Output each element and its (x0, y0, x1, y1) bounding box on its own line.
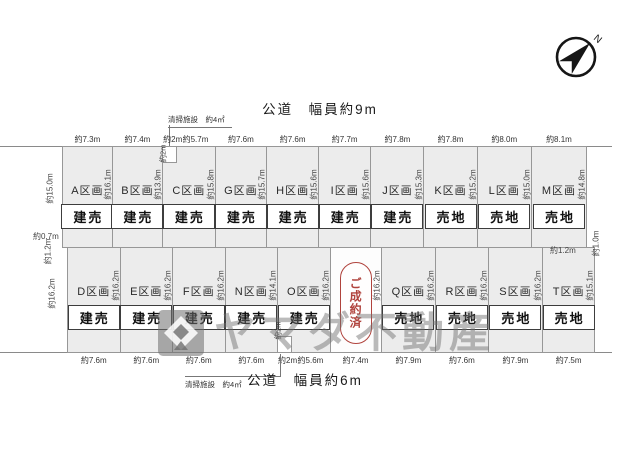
notch-depth-label: 約2m (158, 141, 169, 167)
side-measurement: 約14.1m (268, 261, 279, 311)
lot-f: 約7.6mF区画建売約16.2m (173, 247, 226, 353)
edge-measurement-left-step-v: 約1.2m (43, 232, 54, 272)
side-measurement: 約15.7m (257, 160, 268, 210)
frontage-measurement: 約7.7m (319, 134, 370, 145)
frontage-segment: 約5.6m (291, 355, 329, 366)
frontage-measurement: 約2m約5.6m (278, 355, 330, 366)
lot-i: 約7.7mI区画建売約15.6m (319, 146, 371, 248)
frontage-measurement: 約7.6m (226, 355, 278, 366)
frontage-measurement: 約7.6m (436, 355, 488, 366)
lot-b: 約7.4mB区画建売約13.9m (113, 146, 163, 248)
frontage-measurement: 約8.0m (478, 134, 531, 145)
frontage-segment: 約7.3m (63, 134, 112, 145)
frontage-segment: 約8.1m (532, 134, 586, 145)
side-measurement: 約16.2m (110, 261, 121, 311)
site-plan: N 公道 幅員約9m 清掃施設 約4㎡ 約7.3mA区画建売約16.1m約7.4… (0, 0, 640, 453)
frontage-measurement: 約2m約5.7m (163, 134, 214, 145)
lot-t: 約7.5mT区画売地約15.1m (543, 247, 595, 353)
frontage-measurement: 約7.6m (216, 134, 267, 145)
lot-r: 約7.6mR区画売地約16.2m (436, 247, 489, 353)
frontage-measurement: 約7.8m (371, 134, 423, 145)
side-measurement: 約16.2m (163, 261, 174, 311)
side-measurement: 約13.9m (153, 160, 164, 210)
sold-badge: ご成約済 (340, 262, 372, 344)
lot-m: 約8.1mM区画売地約14.8m (532, 146, 587, 248)
frontage-measurement: 約7.6m (121, 355, 173, 366)
lot-s: 約7.9mS区画売地約16.2m (489, 247, 544, 353)
north-compass-icon: N (549, 26, 605, 82)
frontage-segment: 約7.6m (121, 355, 173, 366)
frontage-measurement: 約7.6m (68, 355, 120, 366)
edge-measurement-left-north: 約15.0m (45, 167, 56, 211)
lot-c: 約2m約5.7mC区画建売約15.8m約2m (163, 146, 215, 248)
lot-e: 約7.6mE区画建売約16.2m (121, 247, 174, 353)
frontage-measurement: 約7.5m (543, 355, 594, 366)
frontage-measurement: 約7.4m (113, 134, 162, 145)
road-label-north: 公道 幅員約9m (0, 98, 640, 118)
frontage-segment: 約7.6m (436, 355, 488, 366)
frontage-measurement: 約7.6m (267, 134, 318, 145)
side-measurement: 約14.8m (577, 160, 588, 210)
frontage-measurement: 約7.3m (63, 134, 112, 145)
facility-note-north: 清掃施設 約4㎡ (168, 114, 232, 128)
side-measurement: 約16.2m (533, 261, 544, 311)
side-measurement: 約15.6m (361, 160, 372, 210)
side-measurement: 約15.1m (585, 261, 596, 311)
notch-depth-label: 約2m (273, 318, 284, 344)
side-measurement: 約16.2m (215, 261, 226, 311)
compass-n-label: N (591, 33, 604, 46)
side-measurement: 約15.8m (205, 160, 216, 210)
lot-o: 約2m約5.6mO区画建売約16.2m約2m (278, 247, 331, 353)
frontage-segment: 約7.6m (216, 134, 267, 145)
frontage-measurement: 約7.8m (424, 134, 476, 145)
lot-k: 約7.8mK区画売地約15.2m (424, 146, 477, 248)
lot-j: 約7.8mJ区画建売約15.3m (371, 146, 424, 248)
frontage-measurement: 約7.4m (331, 355, 381, 366)
lot-n: 約7.6mN区画建売約14.1m (226, 247, 279, 353)
frontage-measurement: 約7.6m (173, 355, 225, 366)
side-measurement: 約16.2m (478, 261, 489, 311)
frontage-segment: 約7.4m (331, 355, 381, 366)
frontage-segment: 約7.7m (319, 134, 370, 145)
side-measurement: 約16.2m (371, 261, 382, 311)
frontage-segment: 約7.9m (382, 355, 436, 366)
lot-row-north: 約7.3mA区画建売約16.1m約7.4mB区画建売約13.9m約2m約5.7m… (62, 146, 587, 248)
side-measurement: 約16.2m (320, 261, 331, 311)
frontage-measurement: 約7.9m (382, 355, 436, 366)
lot-g: 約7.6mG区画建売約15.7m (216, 146, 268, 248)
lot-sold: 約7.4mご成約済約16.2m (331, 247, 382, 353)
lot-row-south: 約7.6mD区画建売約16.2m約7.6mE区画建売約16.2m約7.6mF区画… (67, 247, 595, 353)
frontage-measurement: 約8.1m (532, 134, 586, 145)
side-measurement: 約15.3m (414, 160, 425, 210)
lot-d: 約7.6mD区画建売約16.2m (67, 247, 121, 353)
road-label-south: 公道 幅員約6m (0, 369, 625, 389)
lot-q: 約7.9mQ区画売地約16.2m (382, 247, 437, 353)
frontage-segment: 約7.6m (267, 134, 318, 145)
frontage-segment: 約7.6m (173, 355, 225, 366)
frontage-segment: 約7.4m (113, 134, 162, 145)
edge-measurement-right-step-v: 約1.0m (591, 225, 602, 263)
frontage-segment: 約7.8m (424, 134, 476, 145)
lot-h: 約7.6mH区画建売約15.6m (267, 146, 319, 248)
lot-l: 約8.0mL区画売地約15.0m (478, 146, 532, 248)
side-measurement: 約15.6m (309, 160, 320, 210)
edge-measurement-right-step-h: 約1.2m (550, 245, 576, 256)
frontage-segment: 約7.6m (68, 355, 120, 366)
frontage-segment: 約7.9m (489, 355, 543, 366)
edge-measurement-left-south: 約16.2m (47, 272, 58, 316)
lot-a: 約7.3mA区画建売約16.1m (62, 146, 113, 248)
frontage-measurement: 約7.9m (489, 355, 543, 366)
frontage-segment: 約7.5m (543, 355, 594, 366)
side-measurement: 約15.0m (521, 160, 532, 210)
side-measurement: 約16.2m (426, 261, 437, 311)
side-measurement: 約15.2m (467, 160, 478, 210)
frontage-segment: 約8.0m (478, 134, 531, 145)
frontage-segment: 約5.7m (176, 134, 214, 145)
frontage-segment: 約7.8m (371, 134, 423, 145)
frontage-segment: 約7.6m (226, 355, 278, 366)
side-measurement: 約16.1m (102, 160, 113, 210)
